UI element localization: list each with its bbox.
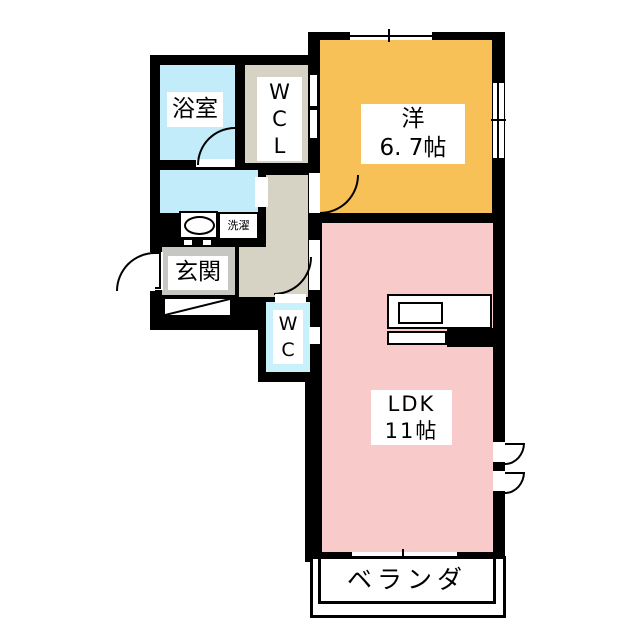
ldk-wall-niche — [309, 327, 320, 344]
room-ldk — [322, 223, 493, 552]
western-room-label: 洋 6. 7帖 — [361, 104, 465, 164]
entrance-step-diagonal — [165, 299, 230, 315]
closet-opening-upper — [310, 75, 317, 106]
walk-in-closet-label: W C L — [257, 77, 302, 161]
window-top-icon — [350, 32, 432, 40]
entrance-step — [163, 297, 232, 317]
floor-plan: 洗濯 ベランダ 浴室 W C L 洋 6. 7帖 玄関 W C LDK 11帖 — [0, 0, 640, 640]
window-top-midline — [350, 35, 432, 37]
service-door-1-opening — [493, 442, 505, 462]
washbasin-icon — [179, 211, 218, 239]
closet-opening-lower — [310, 110, 317, 138]
washbasin-leg-right — [202, 239, 212, 246]
western-door-leaf — [309, 173, 320, 213]
service-door-2-arc-icon — [505, 472, 525, 494]
washroom-door-opening — [255, 177, 268, 207]
kitchen-sink-icon — [398, 302, 443, 324]
veranda-label: ベランダ — [318, 556, 496, 604]
room-washroom — [160, 170, 258, 213]
hallway-upper — [266, 175, 308, 247]
washbasin-leg-left — [183, 239, 193, 246]
toilet-door-opening — [275, 294, 306, 303]
ldk-label: LDK 11帖 — [371, 390, 452, 445]
kitchen-lower-cabinet-icon — [387, 331, 447, 345]
entrance-label: 玄関 — [168, 256, 228, 290]
bathroom-label: 浴室 — [167, 92, 223, 127]
service-door-2-opening — [493, 471, 505, 491]
kitchen-wall-block — [447, 328, 505, 347]
service-door-1-arc-icon — [505, 443, 525, 465]
window-right-tick — [491, 119, 506, 121]
washbasin-oval-icon — [184, 216, 215, 235]
window-top-tick — [388, 29, 390, 42]
entrance-door-arc-icon — [116, 252, 155, 291]
toilet-label: W C — [273, 310, 303, 364]
washing-machine-icon: 洗濯 — [218, 212, 259, 240]
